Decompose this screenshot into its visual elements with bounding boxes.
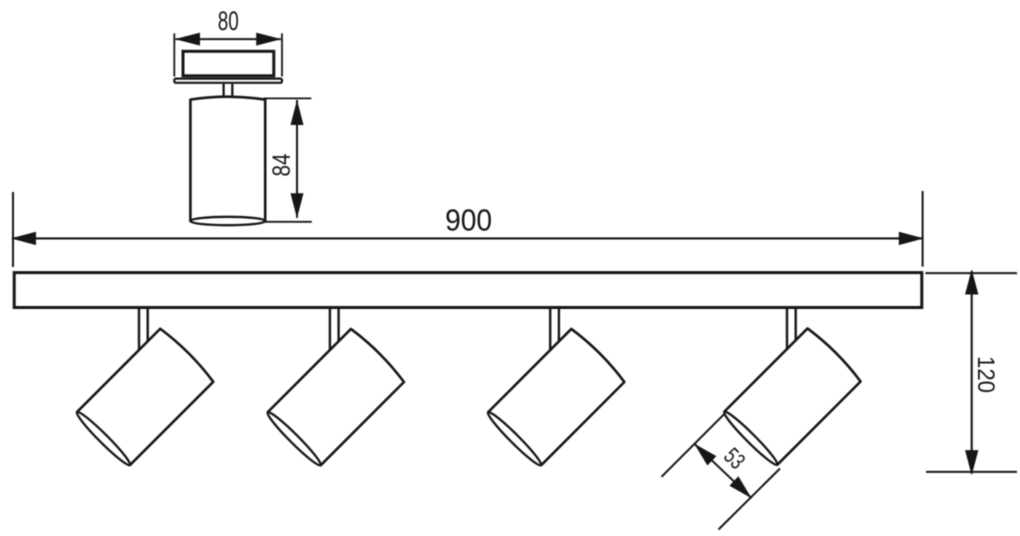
svg-text:53: 53	[719, 443, 750, 474]
svg-text:900: 900	[445, 203, 492, 238]
svg-text:84: 84	[268, 153, 296, 176]
svg-text:120: 120	[972, 356, 999, 393]
svg-text:80: 80	[218, 6, 239, 36]
